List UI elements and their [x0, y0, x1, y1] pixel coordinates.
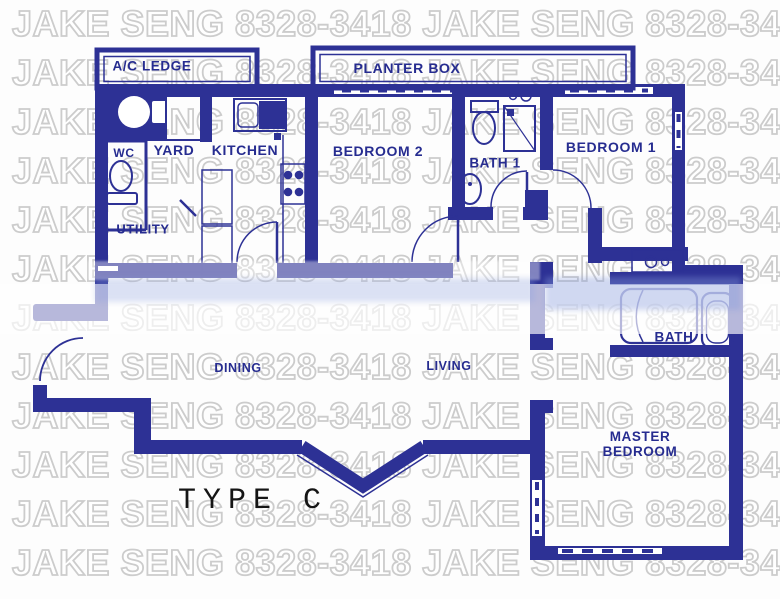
wc-toilet	[107, 161, 137, 204]
bath1-door-arc	[491, 171, 527, 207]
utility-door-mark	[180, 200, 196, 216]
label-yard: YARD	[154, 142, 195, 158]
label-master-line2: BEDROOM	[603, 444, 678, 459]
floorplan-scan: JAKE SENG 8328-3418 JAKE SENG 8328-3418J…	[0, 0, 780, 599]
stove	[281, 164, 305, 204]
label-living: LIVING	[426, 359, 471, 373]
washing-machine	[108, 84, 169, 141]
label-bedroom2: BEDROOM 2	[333, 143, 423, 159]
label-planter-box: PLANTER BOX	[354, 60, 461, 76]
master-toilet	[702, 293, 733, 348]
bedroom2-door-arc	[412, 216, 458, 262]
bedroom1-door-arc	[553, 170, 591, 208]
label-utility: UTILITY	[116, 222, 169, 237]
bath1-toilet	[471, 101, 498, 144]
label-wc: WC	[113, 146, 134, 160]
label-master-bedroom: MASTER BEDROOM	[603, 429, 678, 459]
bath1-shower	[504, 106, 535, 151]
label-master-bath: BATH	[655, 330, 694, 345]
label-master-line1: MASTER	[603, 429, 678, 444]
label-ac-ledge: A/C LEDGE	[113, 59, 192, 74]
yard-cabinet	[166, 85, 232, 276]
label-dining: DINING	[214, 361, 261, 375]
label-bedroom1: BEDROOM 1	[566, 139, 656, 155]
kitchen-door-arc	[237, 222, 277, 262]
plan-type-title: TYPE C	[178, 484, 328, 518]
label-bath1: BATH 1	[469, 156, 520, 171]
floorplan-svg	[0, 0, 780, 599]
label-kitchen: KITCHEN	[212, 142, 278, 158]
kitchen-sink	[234, 99, 286, 140]
entrance-door-arc	[40, 338, 83, 381]
